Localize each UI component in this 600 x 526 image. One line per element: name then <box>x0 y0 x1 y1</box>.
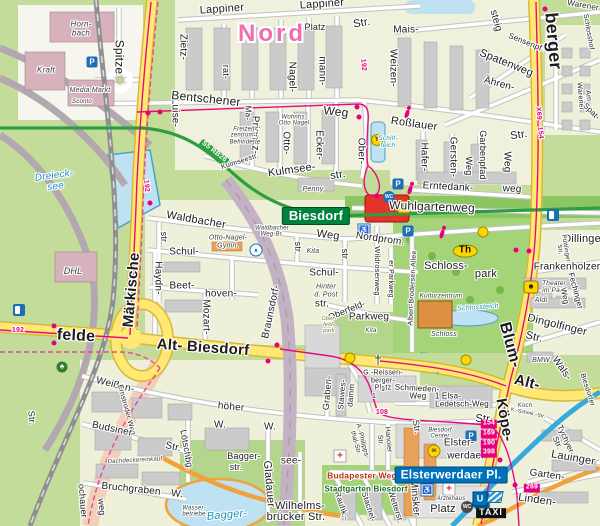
basemap-graphics <box>0 0 600 526</box>
map-canvas[interactable]: PPPPWCWCSU++✉☻Y♿♿♣†▲←→ NordLappinerLappi… <box>0 0 600 526</box>
